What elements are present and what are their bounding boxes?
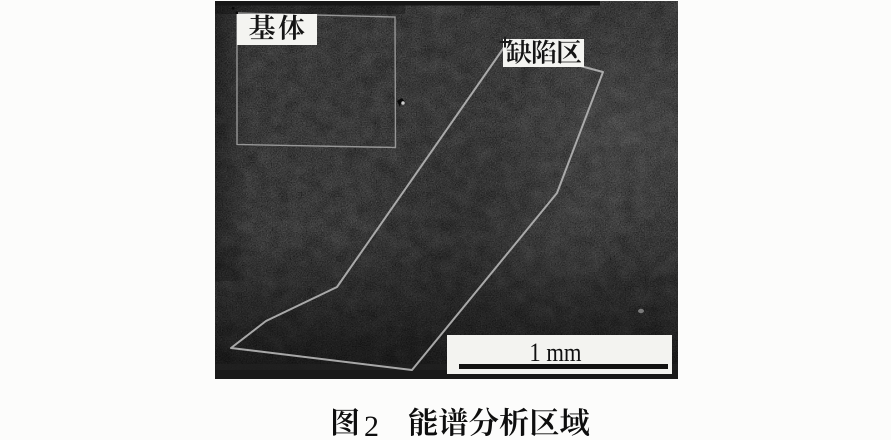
svg-text:2: 2: [364, 410, 379, 439]
